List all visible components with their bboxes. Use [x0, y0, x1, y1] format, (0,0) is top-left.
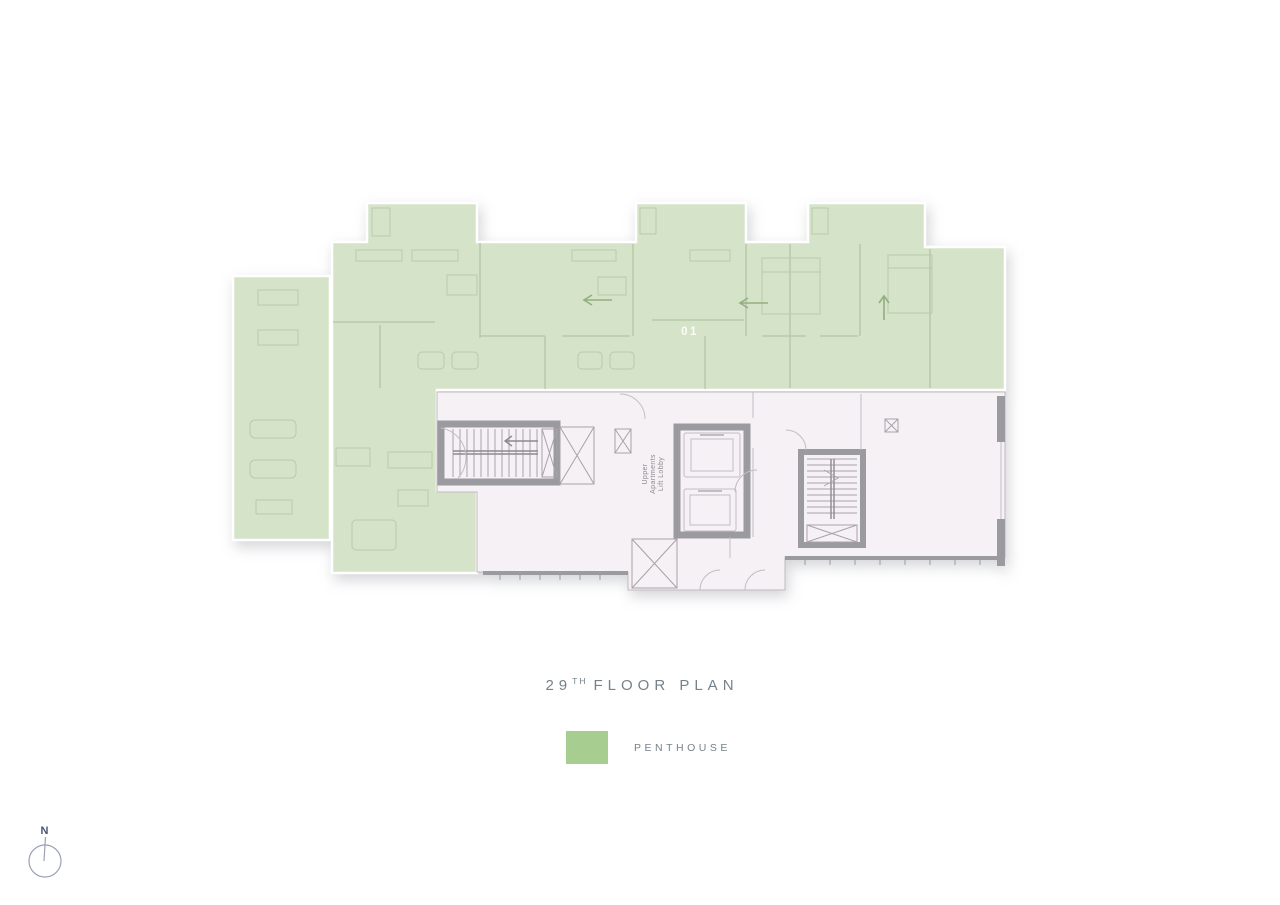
north-label: N — [41, 825, 50, 837]
lobby-label-line3: Lift Lobby — [658, 457, 665, 491]
core-area: Upper Apartments Lift Lobby — [437, 392, 1005, 590]
north-needle — [44, 837, 46, 861]
legend-swatch — [566, 731, 608, 764]
title-floor-number: 29 — [545, 677, 572, 694]
title-text: FLOOR PLAN — [594, 677, 739, 694]
legend-swatch-color — [566, 731, 608, 764]
title-ordinal: TH — [572, 676, 587, 686]
floor-plan-drawing: 01 — [0, 0, 1280, 905]
lobby-label-line1: Upper — [642, 463, 649, 484]
unit-label: 01 — [681, 326, 699, 338]
north-arrow: N — [18, 820, 78, 890]
page-title: 29THFLOOR PLAN — [545, 676, 738, 694]
lobby-label-line2: Apartments — [650, 454, 657, 494]
legend: PENTHOUSE — [566, 731, 731, 764]
floor-plan-page: { "plan": { "unit_label": "01", "lobby_l… — [0, 0, 1280, 905]
legend-label: PENTHOUSE — [634, 742, 731, 754]
